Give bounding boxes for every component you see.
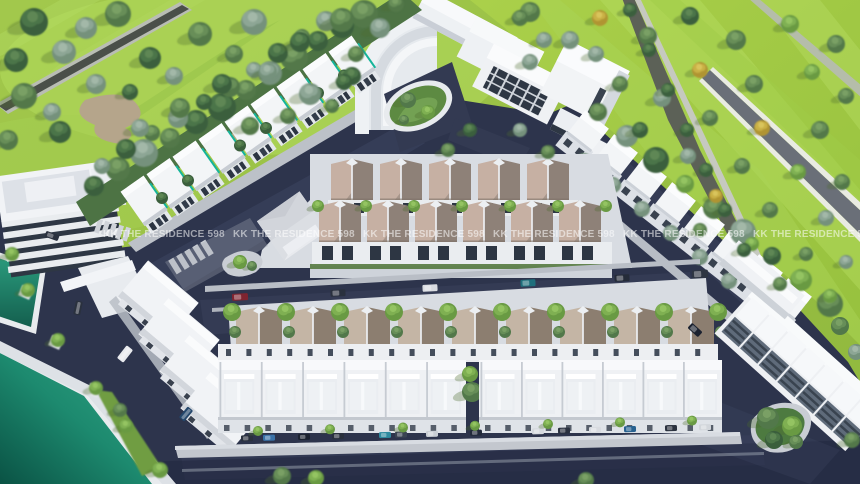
svg-text:KK THE RESIDENCE 598: KK THE RESIDENCE 598 xyxy=(233,229,355,240)
svg-text:KK THE RESIDENCE 598: KK THE RESIDENCE 598 xyxy=(363,229,485,240)
svg-text:KK THE RESIDENCE 598: KK THE RESIDENCE 598 xyxy=(623,229,745,240)
svg-text:KK THE RESIDENCE 598: KK THE RESIDENCE 598 xyxy=(493,229,615,240)
svg-text:KK THE RESIDENCE 598: KK THE RESIDENCE 598 xyxy=(103,229,225,240)
svg-text:KK THE RESIDENCE 598: KK THE RESIDENCE 598 xyxy=(753,229,860,240)
